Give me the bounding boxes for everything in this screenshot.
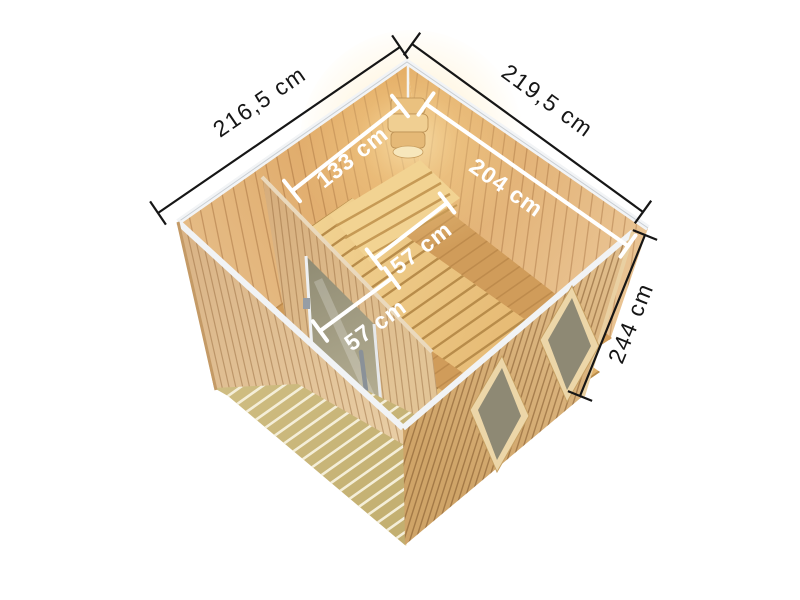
door-hinge-icon (303, 298, 310, 309)
dimension-label: 216,5 cm (208, 61, 311, 143)
diagram-canvas: 133 cm 204 cm 57 cm 57 cm 216,5 cm (0, 0, 800, 600)
sauna-dimension-diagram: 133 cm 204 cm 57 cm 57 cm 216,5 cm (0, 0, 800, 600)
